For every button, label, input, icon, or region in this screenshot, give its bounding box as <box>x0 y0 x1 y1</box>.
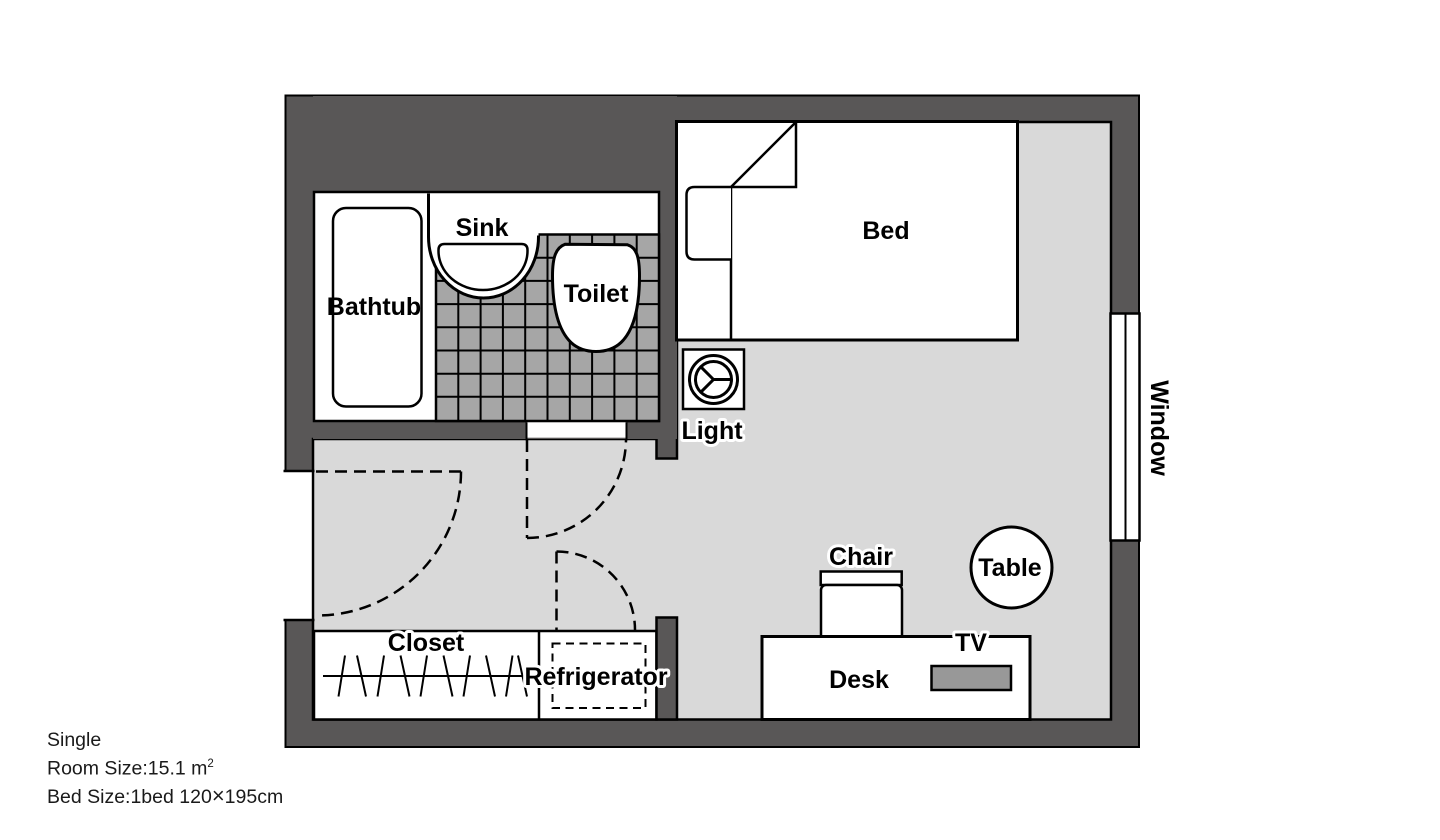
svg-text:Toilet: Toilet <box>564 280 629 308</box>
svg-text:Desk: Desk <box>829 666 889 694</box>
svg-text:Refrigerator: Refrigerator <box>524 663 667 691</box>
svg-text:Room Size:15.1 m2: Room Size:15.1 m2 <box>47 758 214 780</box>
svg-text:Bed Size:1bed 120×195cm: Bed Size:1bed 120×195cm <box>47 783 283 808</box>
svg-text:Light: Light <box>681 417 743 445</box>
svg-text:Window: Window <box>1145 380 1173 476</box>
svg-text:Bathtub: Bathtub <box>327 293 421 321</box>
svg-text:Bed: Bed <box>862 217 909 245</box>
svg-text:Single: Single <box>47 729 101 751</box>
svg-text:Sink: Sink <box>456 214 509 242</box>
svg-text:Table: Table <box>978 554 1042 582</box>
svg-text:Closet: Closet <box>388 629 465 657</box>
svg-text:Chair: Chair <box>829 543 893 571</box>
svg-text:TV: TV <box>955 629 987 657</box>
